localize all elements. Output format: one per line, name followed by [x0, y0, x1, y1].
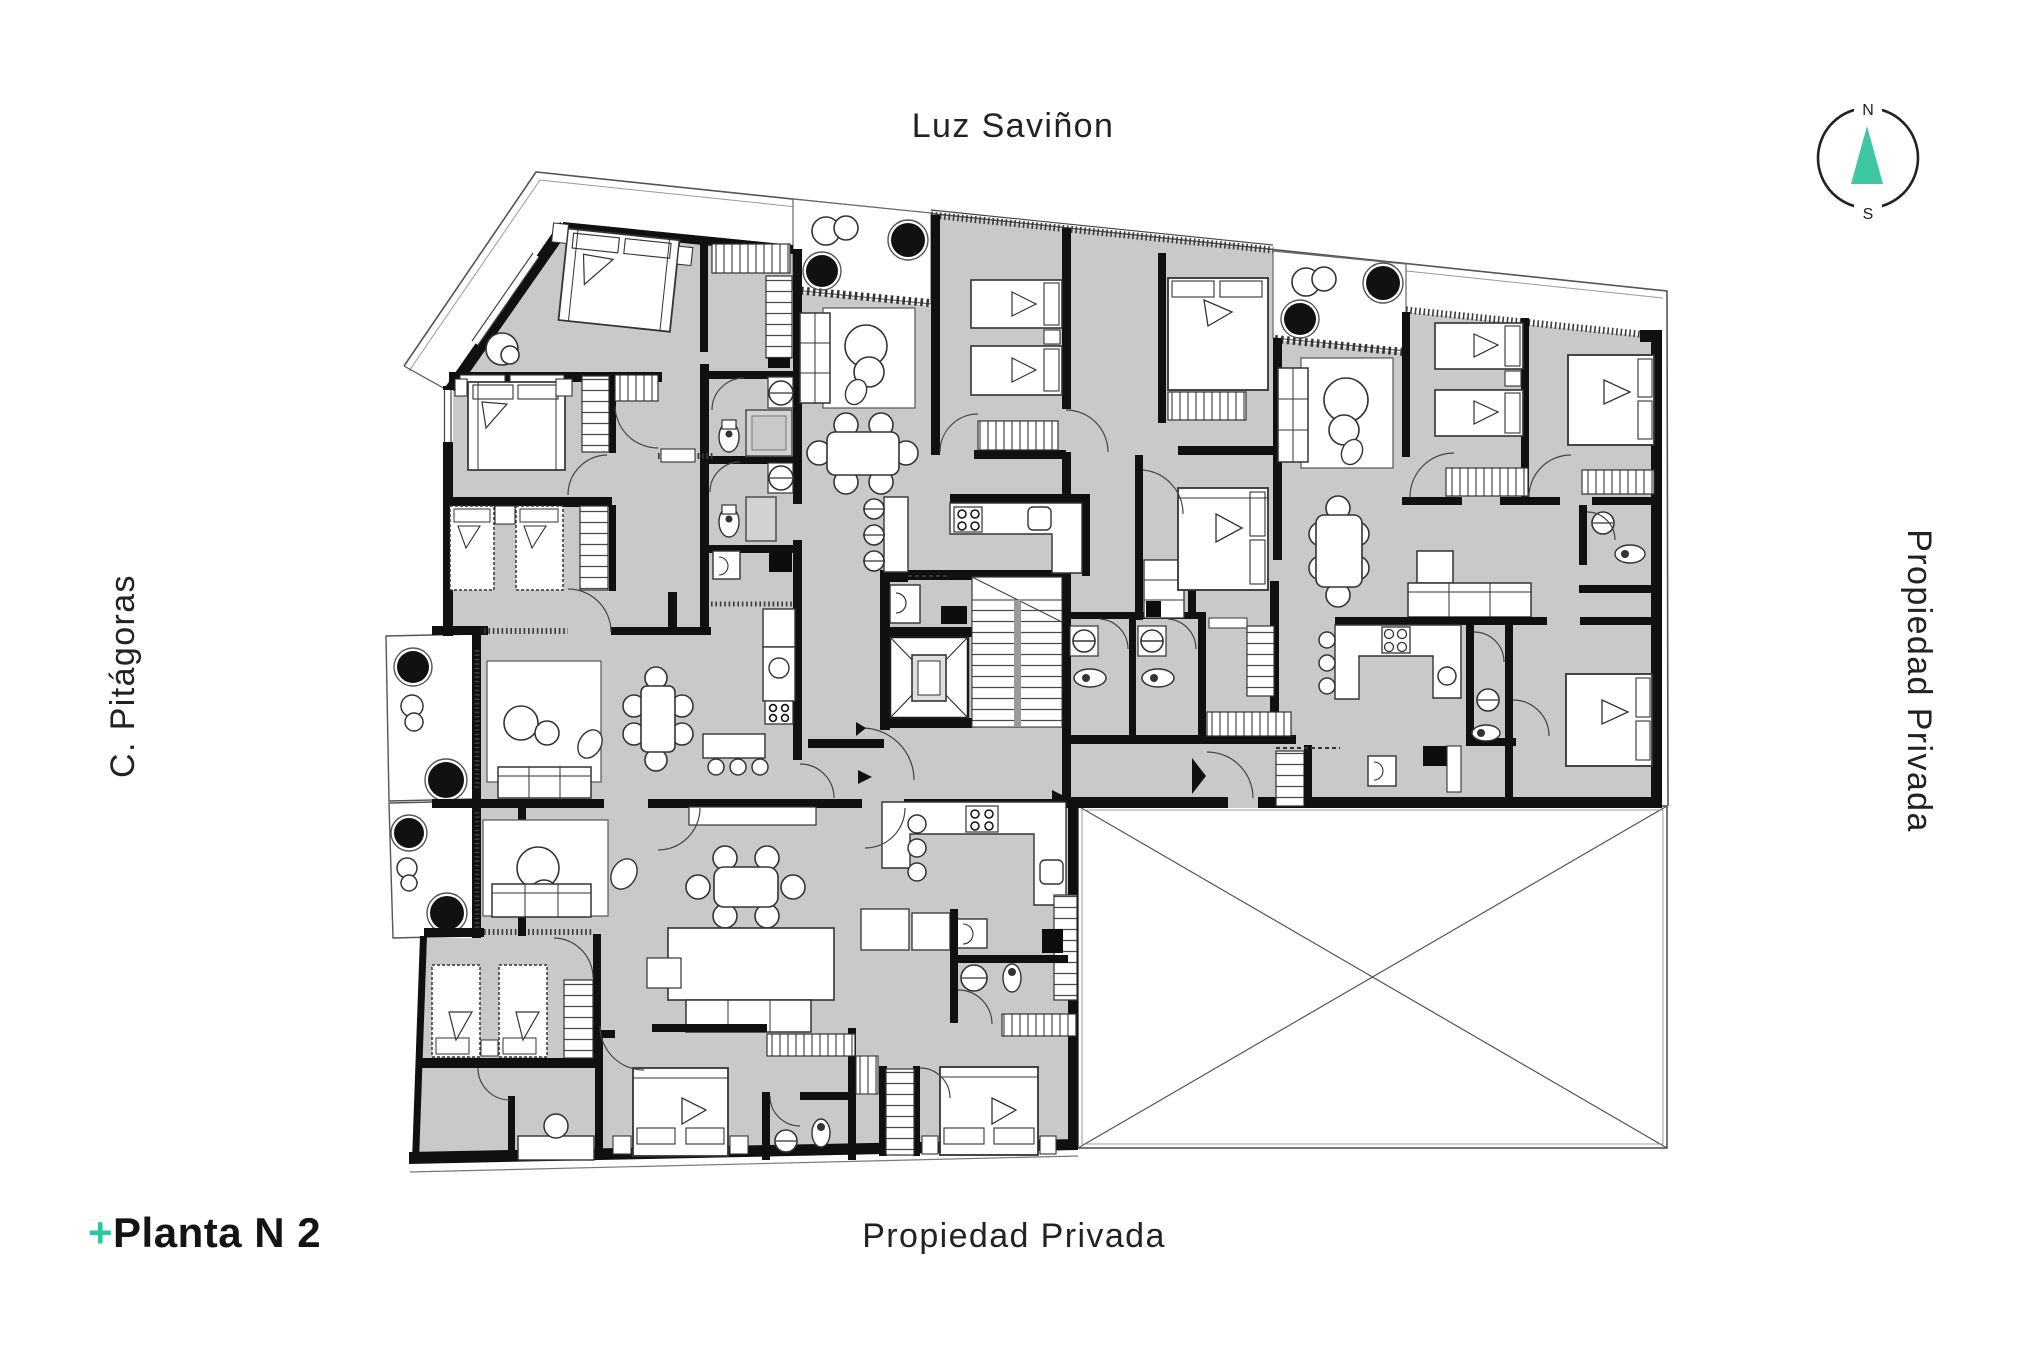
svg-text:Propiedad Privada: Propiedad Privada	[862, 1217, 1166, 1255]
svg-text:C. Pitágoras: C. Pitágoras	[104, 574, 142, 778]
svg-text:+Planta N 2: +Planta N 2	[88, 1209, 321, 1256]
svg-text:N: N	[1862, 102, 1874, 119]
svg-text:Propiedad Privada: Propiedad Privada	[1900, 529, 1938, 833]
svg-text:S: S	[1863, 206, 1874, 223]
svg-text:Luz Saviñon: Luz Saviñon	[912, 107, 1115, 145]
